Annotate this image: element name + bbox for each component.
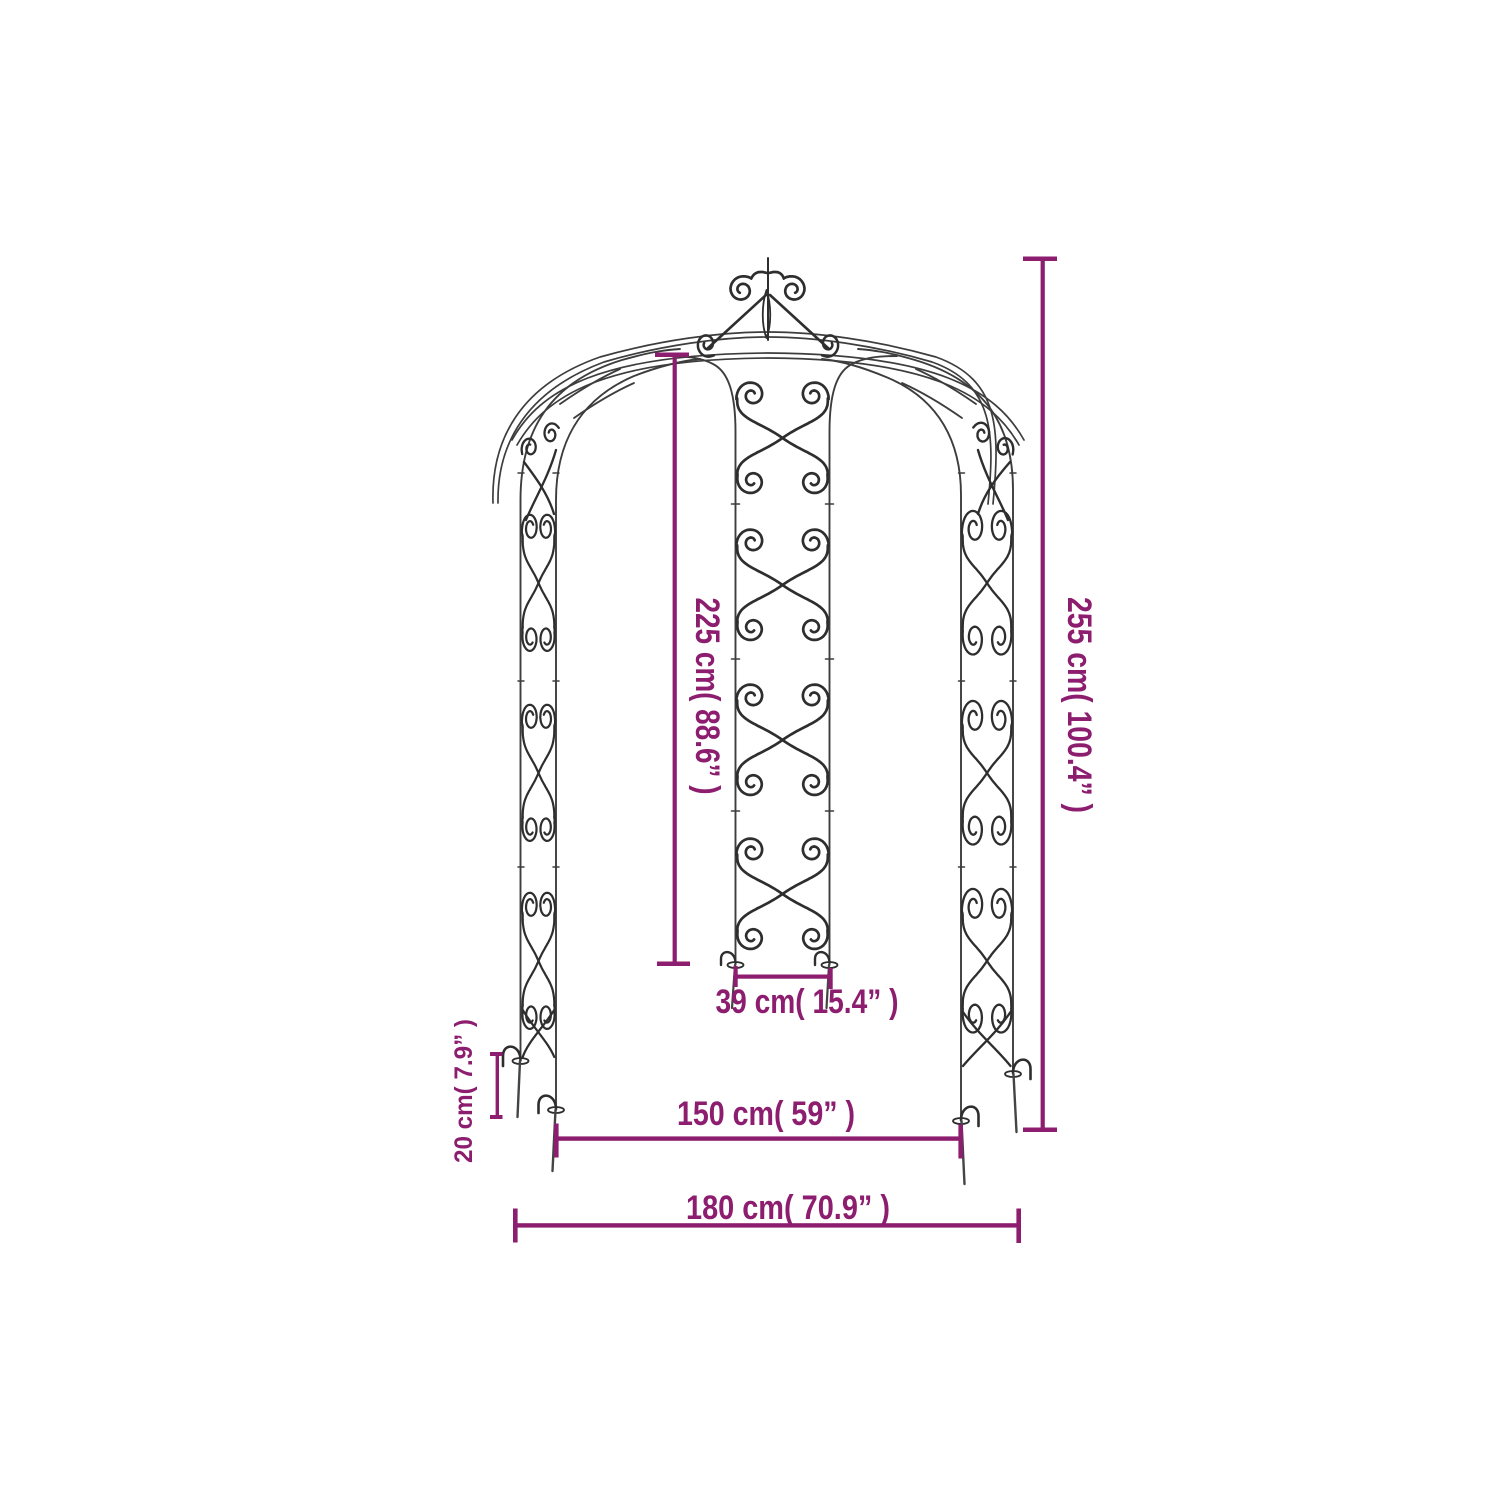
svg-text:150 cm( 59” ): 150 cm( 59” )	[677, 1095, 855, 1133]
svg-text:255 cm( 100.4” ): 255 cm( 100.4” )	[1060, 597, 1098, 813]
svg-text:225 cm( 88.6” ): 225 cm( 88.6” )	[688, 598, 726, 795]
svg-text:39 cm( 15.4” ): 39 cm( 15.4” )	[716, 983, 899, 1021]
svg-text:20 cm( 7.9” ): 20 cm( 7.9” )	[450, 1019, 478, 1163]
svg-text:180 cm( 70.9” ): 180 cm( 70.9” )	[686, 1189, 890, 1227]
